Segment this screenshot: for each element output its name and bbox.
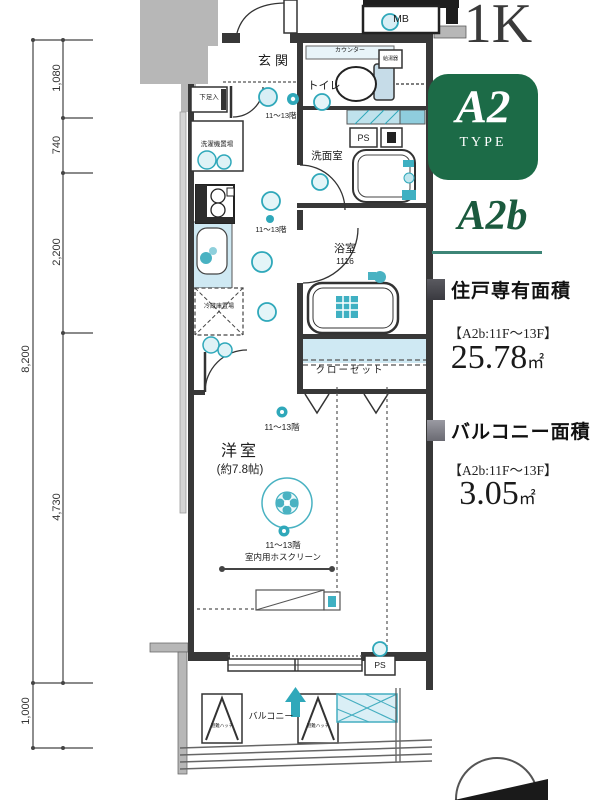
type-badge-main: A2 xyxy=(428,78,538,137)
divider-rule xyxy=(432,251,542,254)
label-hoscreen: 室内用ホスクリーン xyxy=(228,553,338,563)
label-escape-hatch-right: 避難ハッチ xyxy=(298,723,338,728)
plan-code: A2b xyxy=(440,192,545,240)
label-water-heater: 給湯器 xyxy=(379,57,402,63)
unit-area-heading-text: 住戸専有面積 xyxy=(451,276,571,303)
room-label-bathroom: 浴室 xyxy=(327,243,363,256)
room-label-closet: クローゼット xyxy=(300,366,400,377)
label-western-room-size: (約7.8帖) xyxy=(200,464,280,477)
label-floors-note-3: 11〜13階 xyxy=(254,423,310,433)
unit-area-number: 25.78 xyxy=(451,339,528,376)
section-bullet-icon xyxy=(427,279,445,300)
dimension-seg4: 4,730 xyxy=(51,467,63,547)
label-floors-note-4: 11〜13階 xyxy=(255,541,311,551)
type-badge: A2 TYPE xyxy=(428,74,538,180)
unit-area-value: 25.78㎡ xyxy=(430,339,565,377)
floorplan-page: 玄関 トイレ カウンター 給湯器 洗面室 PS 浴室 1116 下足入 洗濯機置… xyxy=(0,0,600,800)
label-shoe-cabinet: 下足入 xyxy=(191,94,227,101)
balcony-area-heading: バルコニー面積 xyxy=(427,417,591,444)
compass-icon xyxy=(430,758,548,800)
balcony-area-heading-text: バルコニー面積 xyxy=(451,417,591,444)
label-fridge-space: 冷蔵庫置場 xyxy=(196,304,242,311)
label-pipe-space-lower: PS xyxy=(365,661,395,671)
unit-area-unit: ㎡ xyxy=(527,353,544,372)
dimension-seg5: 1,000 xyxy=(20,671,32,751)
section-bullet-icon xyxy=(427,420,445,441)
dimension-overall: 8,200 xyxy=(20,319,32,399)
balcony-area-unit: ㎡ xyxy=(519,489,536,508)
dimension-seg2: 740 xyxy=(51,105,63,185)
room-label-washroom: 洗面室 xyxy=(303,150,351,162)
label-washer-space: 洗濯機置場 xyxy=(192,141,242,148)
unit-area-heading: 住戸専有面積 xyxy=(427,276,571,303)
room-label-toilet: トイレ xyxy=(302,80,346,93)
room-label-western-room: 洋室 xyxy=(210,443,270,461)
balcony-area-number: 3.05 xyxy=(459,475,519,512)
dimension-seg3: 2,200 xyxy=(51,212,63,292)
type-badge-sub: TYPE xyxy=(428,135,538,151)
label-bathroom-module: 1116 xyxy=(327,257,363,267)
plan-type-title: 1K xyxy=(448,0,548,56)
hoscreen-symbol xyxy=(219,566,335,572)
label-counter: カウンター xyxy=(306,48,394,55)
room-label-entrance: 玄関 xyxy=(245,54,305,69)
label-escape-hatch-left: 避難ハッチ xyxy=(202,723,242,728)
room-label-balcony: バルコニー xyxy=(239,711,303,721)
label-pipe-space: PS xyxy=(350,133,377,143)
label-floors-note-2: 11〜13階 xyxy=(243,226,299,235)
balcony-area-value: 3.05㎡ xyxy=(430,475,565,513)
label-meter-box: MB xyxy=(363,6,439,33)
label-floors-note-1: 11〜13階 xyxy=(253,112,309,121)
counter-furniture xyxy=(256,590,340,610)
